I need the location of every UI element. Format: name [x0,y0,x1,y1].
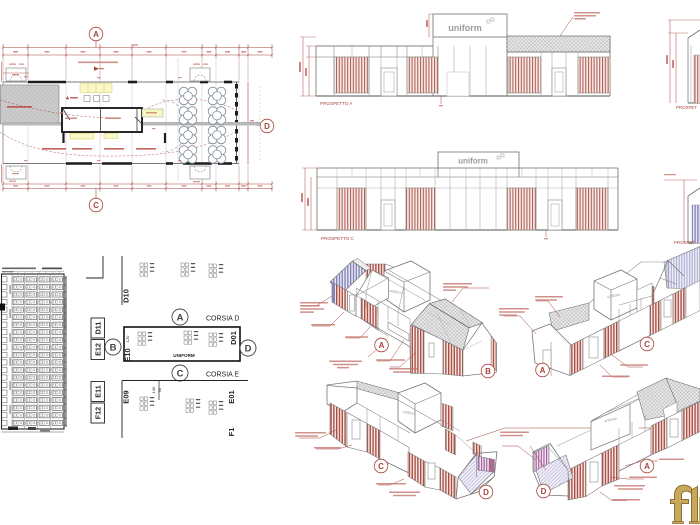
svg-text:D01: D01 [229,331,238,345]
svg-text:PROSPETTO C: PROSPETTO C [321,236,355,241]
svg-text:E12: E12 [94,343,103,356]
svg-text:D11: D11 [94,322,103,335]
svg-text:D: D [245,343,252,354]
svg-text:F12: F12 [94,407,103,419]
svg-text:PROSPET: PROSPET [676,105,697,110]
svg-text:D10: D10 [122,289,131,303]
svg-text:D: D [264,122,270,131]
svg-text:CORSIA E: CORSIA E [206,372,239,379]
svg-text:uniform: uniform [448,23,482,33]
svg-text:B: B [485,367,491,376]
svg-text:F1: F1 [227,428,236,437]
svg-text:PROSPET: PROSPET [674,240,695,245]
svg-text:PROSPETTO A: PROSPETTO A [320,101,353,106]
svg-text:C: C [177,368,184,379]
svg-text:D: D [541,487,547,496]
svg-text:C: C [644,340,650,349]
svg-text:B: B [110,342,117,353]
svg-text:E10: E10 [123,348,132,361]
svg-text:A: A [93,30,99,39]
svg-text:D: D [483,488,489,497]
svg-text:uniform: uniform [458,157,488,166]
svg-text:E11: E11 [94,385,103,397]
svg-text:120: 120 [125,335,130,342]
svg-text:UNIFORM: UNIFORM [173,353,195,358]
svg-text:A: A [540,366,546,375]
svg-text:C: C [93,201,99,210]
svg-text:A: A [177,312,184,323]
svg-text:60: 60 [157,387,162,392]
svg-text:C: C [378,462,384,471]
svg-text:E01: E01 [227,390,236,403]
svg-text:CORSIA D: CORSIA D [206,316,239,323]
svg-text:A: A [379,341,385,350]
svg-text:E09: E09 [122,390,131,403]
svg-text:140: 140 [151,386,156,393]
svg-text:A: A [644,462,650,471]
